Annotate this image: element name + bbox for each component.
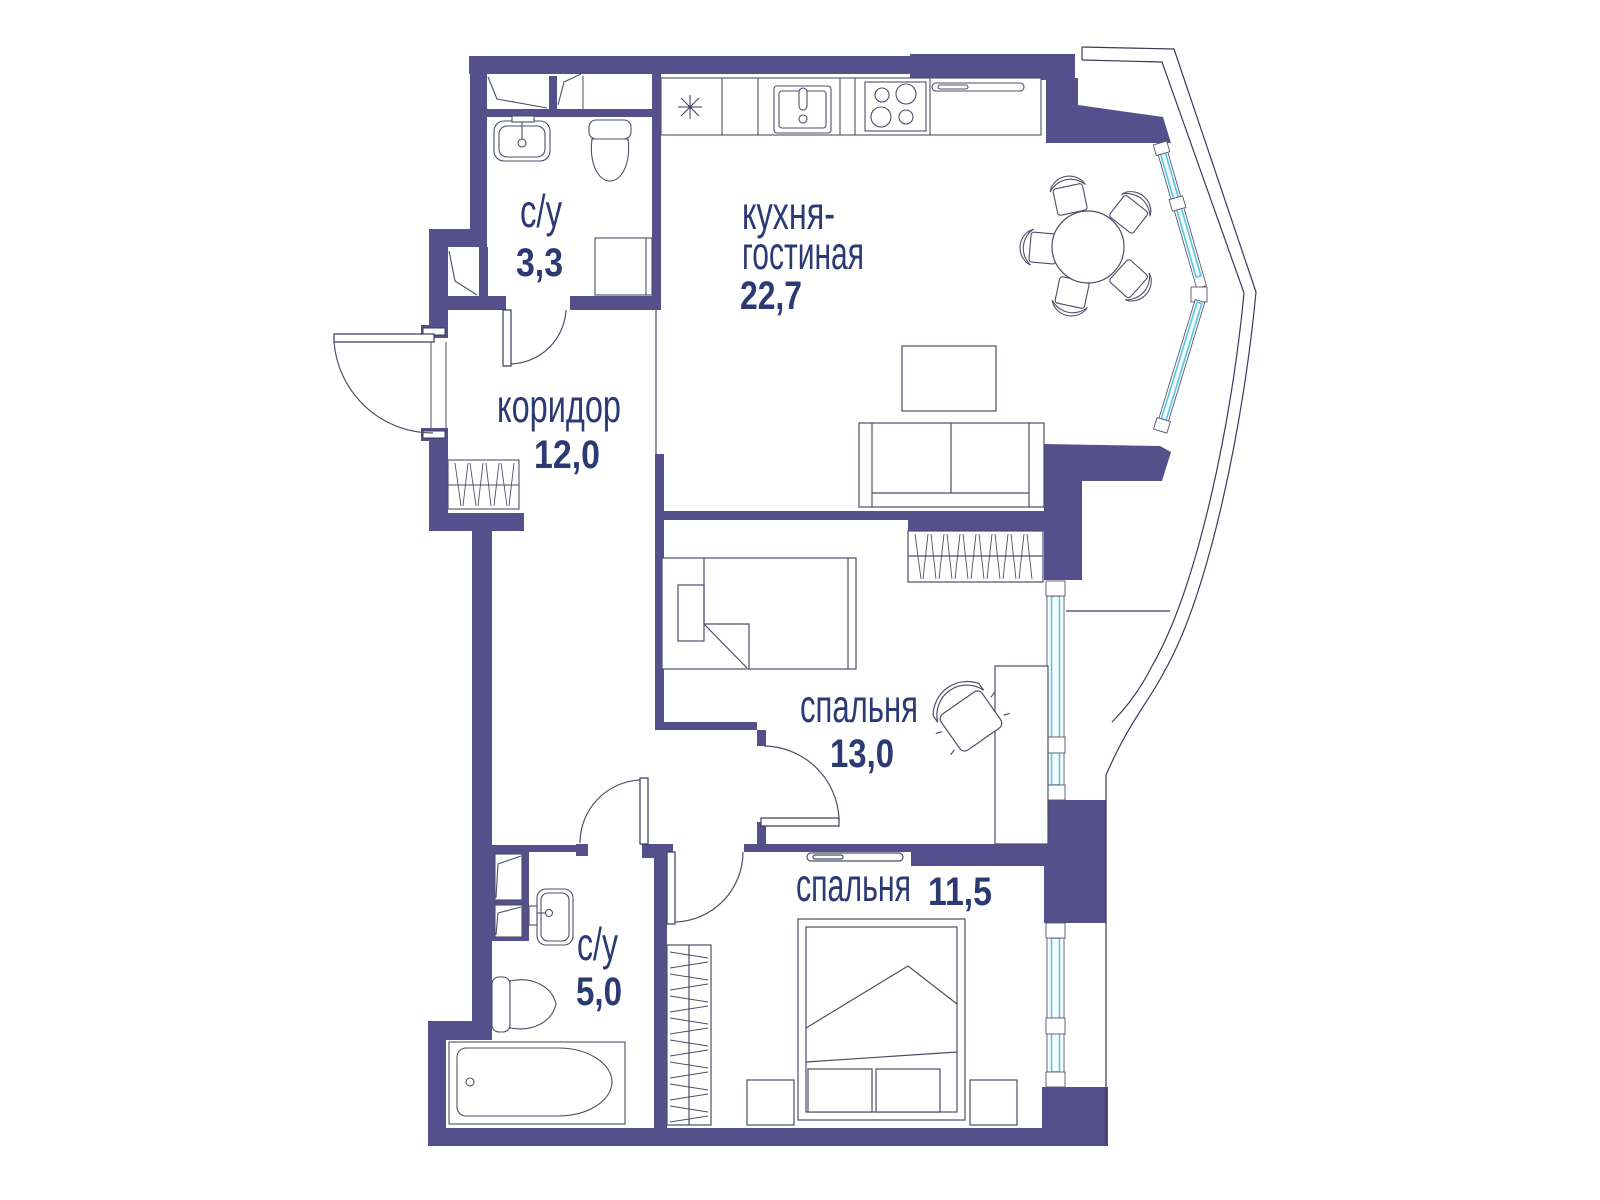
- svg-text:спальня: спальня: [800, 680, 918, 732]
- svg-text:11,5: 11,5: [928, 870, 992, 914]
- svg-text:5,0: 5,0: [576, 970, 622, 1014]
- svg-text:гостиная: гостиная: [742, 227, 864, 279]
- svg-text:коридор: коридор: [497, 380, 621, 432]
- svg-text:22,7: 22,7: [740, 274, 802, 318]
- svg-text:с/у: с/у: [520, 185, 562, 237]
- svg-text:спальня: спальня: [796, 859, 911, 911]
- svg-text:3,3: 3,3: [516, 241, 563, 285]
- svg-text:с/у: с/у: [577, 918, 618, 970]
- svg-text:13,0: 13,0: [830, 732, 894, 776]
- svg-text:12,0: 12,0: [534, 433, 600, 477]
